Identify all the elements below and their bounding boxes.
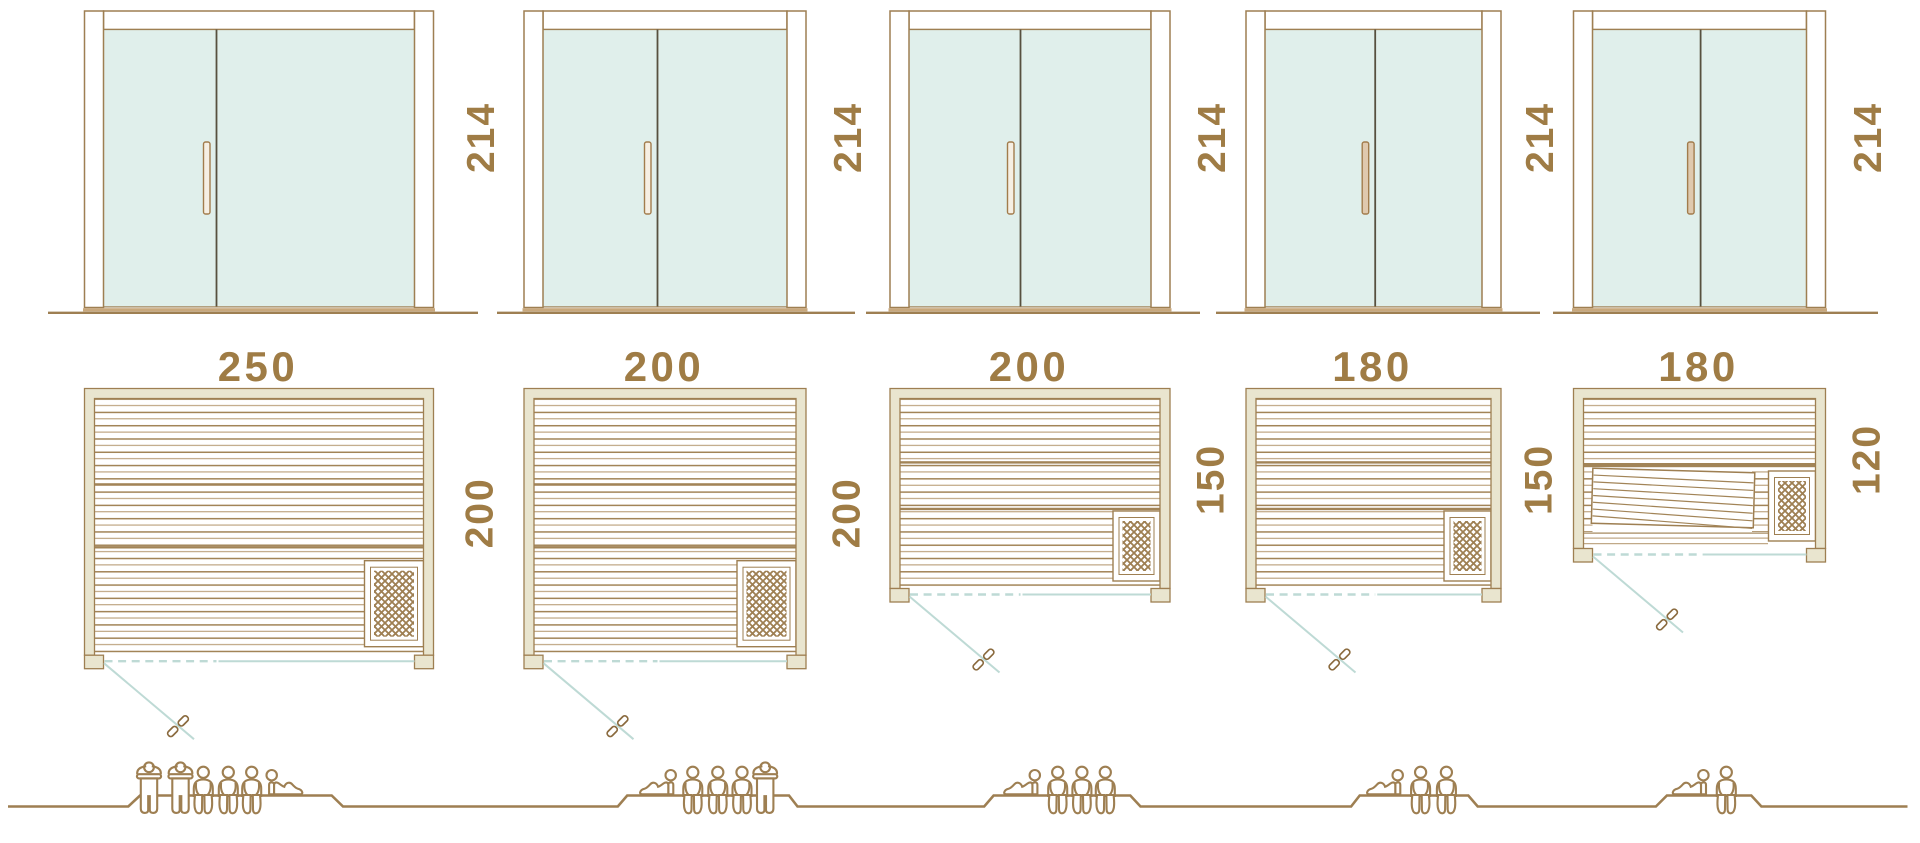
svg-text:214: 214 <box>1191 102 1234 173</box>
svg-text:200: 200 <box>624 343 705 390</box>
svg-text:200: 200 <box>826 477 869 548</box>
svg-text:214: 214 <box>460 102 503 173</box>
svg-text:214: 214 <box>827 102 870 173</box>
svg-text:214: 214 <box>1519 102 1562 173</box>
svg-text:214: 214 <box>1847 102 1890 173</box>
svg-text:200: 200 <box>989 343 1070 390</box>
svg-text:250: 250 <box>218 343 299 390</box>
svg-text:200: 200 <box>459 477 502 548</box>
svg-text:120: 120 <box>1846 424 1889 495</box>
svg-text:180: 180 <box>1332 343 1413 390</box>
svg-text:180: 180 <box>1658 343 1739 390</box>
svg-text:150: 150 <box>1517 444 1560 515</box>
svg-text:150: 150 <box>1190 444 1233 515</box>
